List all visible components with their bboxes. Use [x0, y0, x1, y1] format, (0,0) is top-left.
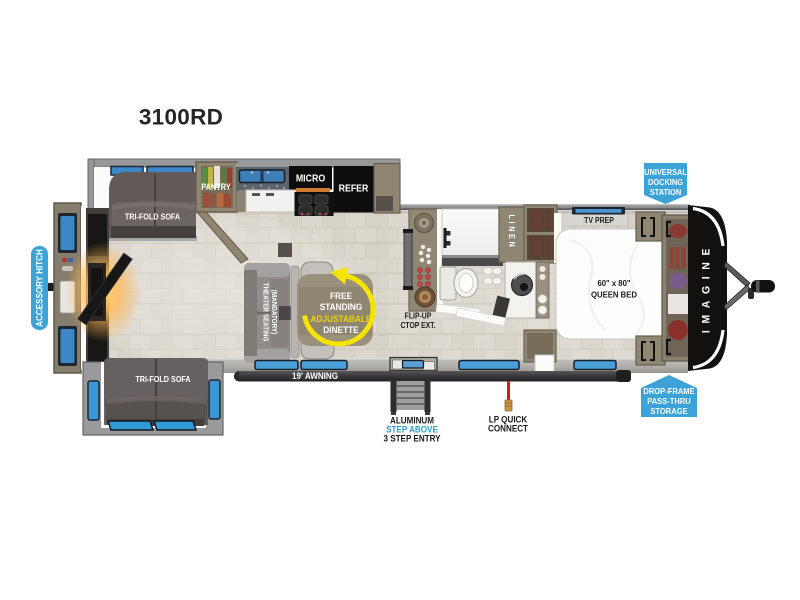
svg-text:QUEEN BED: QUEEN BED [591, 290, 637, 299]
svg-text:(MANDATORY): (MANDATORY) [270, 290, 277, 334]
svg-text:THEATER SEATING: THEATER SEATING [261, 283, 268, 342]
svg-text:REFER: REFER [339, 182, 369, 194]
svg-text:TRI-FOLD SOFA: TRI-FOLD SOFA [135, 374, 191, 384]
svg-text:60" x 80": 60" x 80" [597, 279, 630, 288]
svg-text:MICRO: MICRO [296, 172, 325, 184]
svg-text:FREE: FREE [330, 291, 352, 302]
svg-text:STORAGE: STORAGE [650, 407, 688, 417]
svg-text:DOCKING: DOCKING [648, 178, 683, 188]
svg-text:LINEN: LINEN [507, 214, 516, 249]
svg-text:STATION: STATION [650, 188, 682, 198]
svg-text:ADJUSTABALE: ADJUSTABALE [310, 314, 371, 325]
svg-text:IMAGINE: IMAGINE [700, 242, 712, 333]
svg-text:19' AWNING: 19' AWNING [292, 370, 338, 381]
svg-text:TV PREP: TV PREP [584, 215, 614, 225]
svg-text:CONNECT: CONNECT [488, 423, 529, 434]
svg-text:3100RD: 3100RD [139, 105, 223, 130]
svg-text:STANDING: STANDING [320, 302, 363, 313]
svg-text:DINETTE: DINETTE [323, 325, 359, 336]
svg-text:ACCESSORY HITCH: ACCESSORY HITCH [34, 249, 45, 327]
svg-text:UNIVERSAL: UNIVERSAL [644, 168, 687, 178]
svg-text:3 STEP ENTRY: 3 STEP ENTRY [383, 433, 440, 444]
svg-text:PASS-THRU: PASS-THRU [647, 397, 691, 407]
svg-text:CTOP EXT.: CTOP EXT. [400, 321, 435, 331]
svg-text:TRI-FOLD SOFA: TRI-FOLD SOFA [125, 212, 181, 222]
svg-text:FLIP-UP: FLIP-UP [405, 311, 432, 321]
svg-text:PANTRY: PANTRY [201, 182, 231, 192]
svg-text:DROP-FRAME: DROP-FRAME [643, 387, 695, 397]
